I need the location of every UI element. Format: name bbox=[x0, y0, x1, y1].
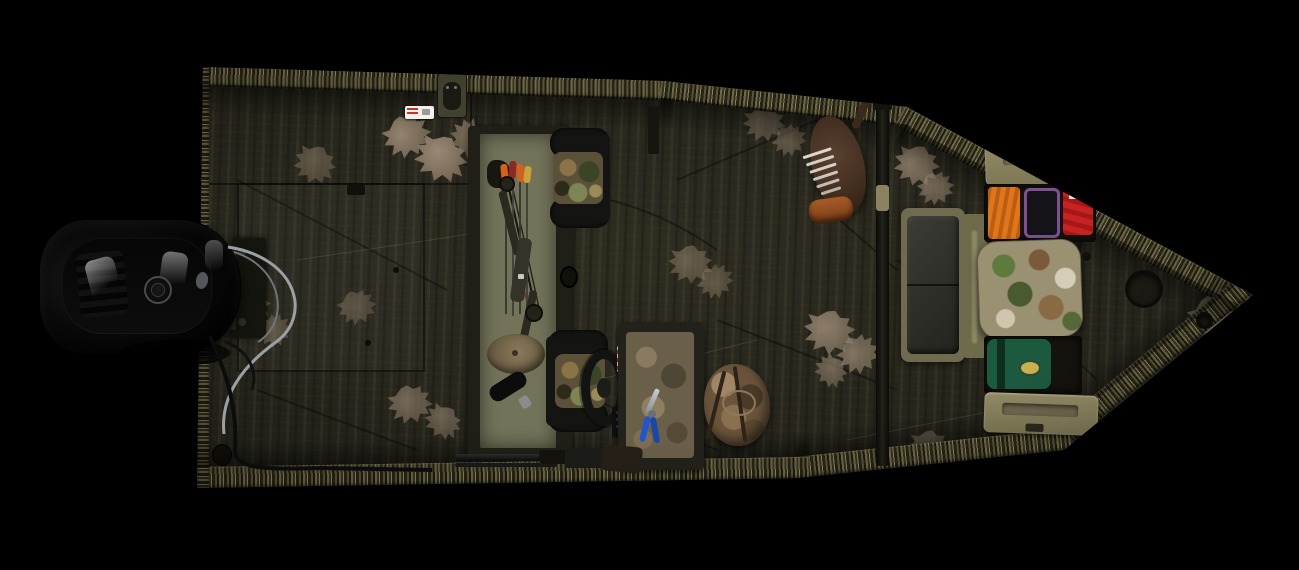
outboard-motor bbox=[40, 220, 240, 354]
boat-product-photo bbox=[0, 0, 1299, 570]
lid-handle-groove bbox=[1003, 149, 1079, 166]
boat-hull bbox=[197, 60, 1255, 492]
turkey-head bbox=[865, 72, 879, 92]
lid-latch bbox=[1026, 138, 1044, 147]
motor-emblem bbox=[144, 276, 172, 304]
leaf-print bbox=[1199, 343, 1233, 381]
photo-vignette bbox=[197, 60, 1255, 492]
cowl-glint bbox=[205, 240, 223, 270]
motor-shadow bbox=[120, 340, 230, 366]
